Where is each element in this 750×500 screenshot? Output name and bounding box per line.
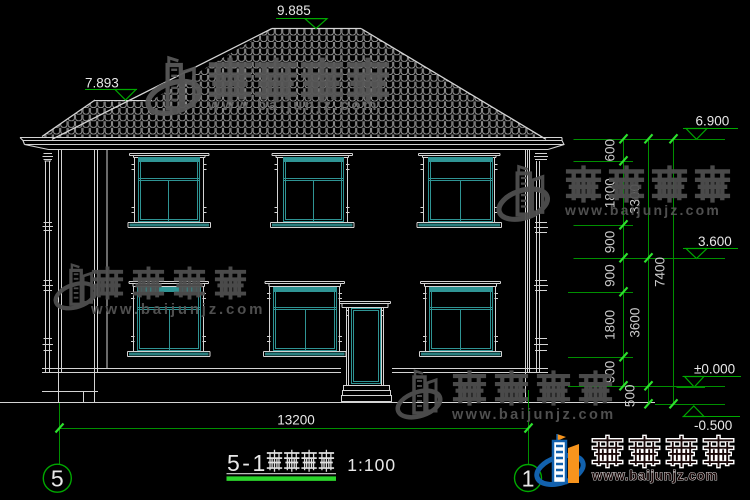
svg-text:3.600: 3.600 xyxy=(698,234,732,249)
svg-text:1: 1 xyxy=(522,465,535,491)
svg-text:13200: 13200 xyxy=(277,413,315,428)
svg-text:www.baijunjz.com: www.baijunjz.com xyxy=(591,468,718,483)
svg-text:600: 600 xyxy=(603,139,618,162)
svg-text:900: 900 xyxy=(603,264,618,287)
svg-text:9.885: 9.885 xyxy=(277,3,311,18)
svg-text:7.893: 7.893 xyxy=(85,76,119,91)
svg-text:www.baijunjz.com: www.baijunjz.com xyxy=(90,301,265,318)
svg-text:-0.500: -0.500 xyxy=(694,418,732,433)
svg-text:1800: 1800 xyxy=(603,310,618,340)
svg-text:5: 5 xyxy=(51,466,64,492)
svg-text:3600: 3600 xyxy=(627,308,642,338)
svg-text:500: 500 xyxy=(623,385,638,408)
svg-text:7400: 7400 xyxy=(652,257,667,287)
svg-text:1:100: 1:100 xyxy=(347,455,396,475)
svg-text:6.900: 6.900 xyxy=(696,114,730,129)
svg-text:900: 900 xyxy=(603,231,618,254)
svg-text:5-1: 5-1 xyxy=(227,450,268,476)
svg-text:±0.000: ±0.000 xyxy=(694,362,735,377)
svg-text:www.baijunjz.com: www.baijunjz.com xyxy=(451,407,616,423)
svg-text:www.baijunjz.com: www.baijunjz.com xyxy=(564,202,721,218)
svg-text:www.baijunjz.com: www.baijunjz.com xyxy=(207,97,379,114)
